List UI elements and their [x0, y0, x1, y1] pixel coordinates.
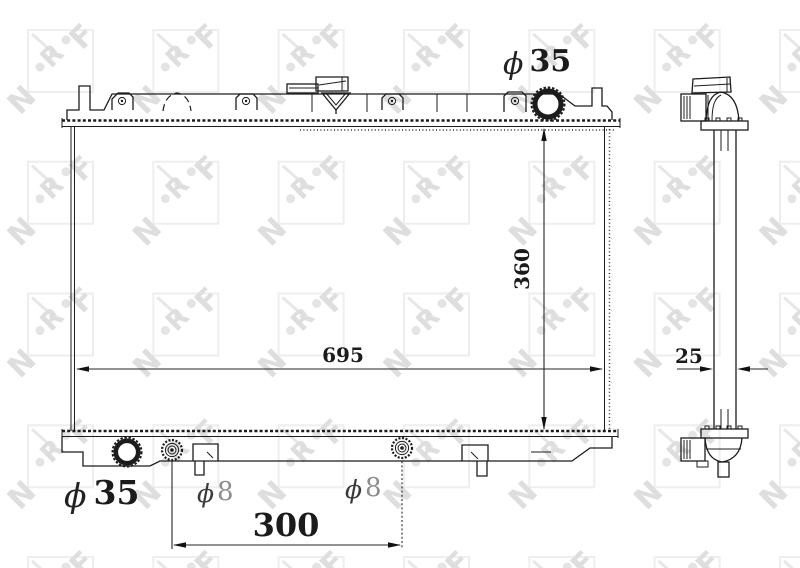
- outlet-port-circle: [113, 438, 142, 467]
- side-view: 25: [675, 77, 768, 477]
- side-top-tank: [681, 77, 748, 130]
- side-top-dome: [706, 92, 739, 121]
- dim-core-depth-label: 25: [675, 344, 703, 368]
- tank-arc-detail: [163, 93, 191, 111]
- core-top-plate: [62, 118, 620, 130]
- dim-core-depth: 25: [675, 344, 768, 372]
- radiator-technical-drawing: N R F: [0, 0, 800, 568]
- drain-right-diameter-label: ϕ8: [345, 473, 382, 504]
- filler-cap: [287, 77, 350, 114]
- side-inlet-pipe: [681, 94, 706, 121]
- inlet-diameter-label: ϕ35: [503, 44, 571, 82]
- drain-plug-right: [392, 438, 412, 458]
- outlet-diameter-label: ϕ35: [64, 473, 139, 515]
- dim-core-width-label: 695: [322, 343, 364, 367]
- dim-core-height-label: 360: [510, 248, 534, 290]
- dim-drain-spacing-label: 300: [253, 506, 320, 544]
- drain-left-diameter-label: ϕ8: [197, 477, 234, 508]
